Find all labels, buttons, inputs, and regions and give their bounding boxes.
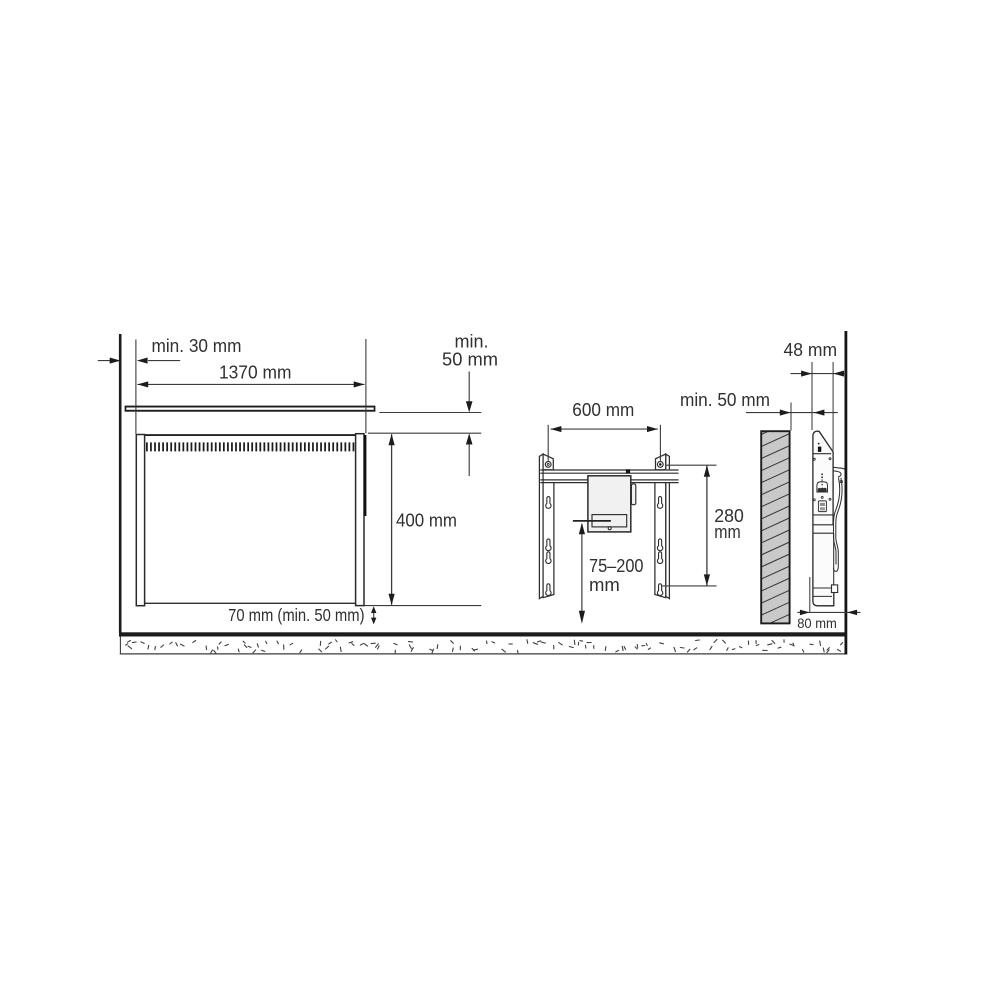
svg-text:400 mm: 400 mm	[396, 510, 457, 531]
svg-text:min. 50 mm: min. 50 mm	[680, 389, 770, 410]
svg-text:75–200: 75–200	[589, 555, 644, 576]
svg-text:48 mm: 48 mm	[784, 339, 838, 360]
svg-text:80 mm: 80 mm	[797, 615, 837, 631]
svg-text:mm: mm	[589, 574, 620, 595]
svg-text:mm: mm	[714, 521, 741, 542]
svg-text:70 mm (min. 50 mm): 70 mm (min. 50 mm)	[228, 605, 364, 625]
svg-text:min.: min.	[455, 331, 489, 351]
svg-text:50 mm: 50 mm	[442, 349, 498, 369]
svg-text:1370 mm: 1370 mm	[219, 361, 292, 382]
svg-text:600 mm: 600 mm	[572, 399, 634, 420]
svg-text:min. 30 mm: min. 30 mm	[152, 336, 242, 356]
